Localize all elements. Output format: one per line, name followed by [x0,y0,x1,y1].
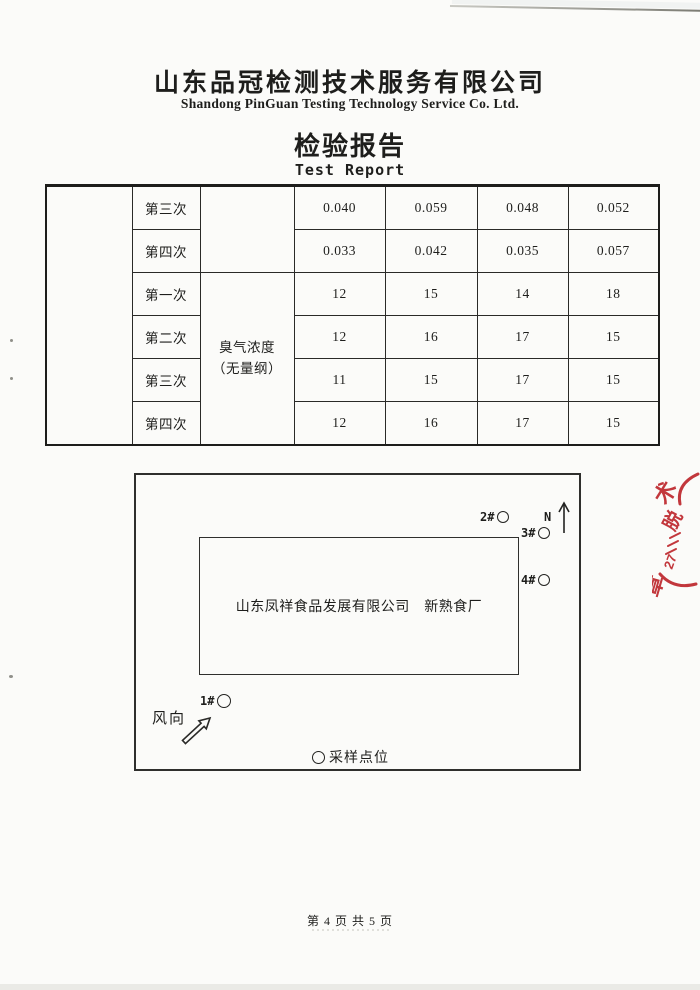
value-cell: 0.048 [477,186,568,230]
value-cell: 15 [568,316,659,359]
scan-residue [312,929,392,931]
empty-param-cell [200,186,294,273]
scan-speck [10,377,13,380]
results-table: 第三次 0.040 0.059 0.048 0.052 第四次 0.033 0.… [45,184,660,446]
value-cell: 0.052 [568,186,659,230]
value-cell: 12 [294,273,385,316]
row-label-cell: 第三次 [132,186,200,230]
stamp-glyph: 27 [661,552,680,571]
stamp-glyph: 脱 [658,507,687,535]
value-cell: 15 [568,402,659,446]
sample-point-3-label: 3# [521,526,535,540]
empty-cell [46,186,132,446]
sample-point-2-label: 2# [480,510,494,524]
parameter-name: 臭气浓度 [201,338,294,359]
value-cell: 17 [477,402,568,446]
facility-boundary: 山东凤祥食品发展有限公司 新熟食厂 [199,537,519,675]
company-name-english: Shandong PinGuan Testing Technology Serv… [0,96,700,112]
north-arrow-icon [556,499,572,535]
legend: 采样点位 [312,747,389,767]
table-row: 第四次 0.033 0.042 0.035 0.057 [46,230,659,273]
row-label-cell: 第四次 [132,402,200,446]
facility-label: 山东凤祥食品发展有限公司 新熟食厂 [236,596,483,616]
sample-point-1-label: 1# [200,694,214,708]
north-label: N [544,510,551,535]
scan-speck [9,675,13,678]
sample-point-4-label: 4# [521,573,535,587]
parameter-unit: （无量纲） [201,359,294,380]
sample-point-circle-icon [497,511,509,523]
sample-point-1: 1# [200,694,231,708]
value-cell: 17 [477,316,568,359]
sample-point-2: 2# [480,510,509,524]
sample-point-circle-icon [538,574,550,586]
company-name-chinese: 山东品冠检测技术服务有限公司 [0,63,700,99]
table-row: 第四次 12 16 17 15 [46,402,659,446]
row-label-cell: 第一次 [132,273,200,316]
value-cell: 15 [568,359,659,402]
report-title-chinese: 检验报告 [0,126,700,163]
north-indicator: N [544,499,572,535]
table-row: 第三次 11 15 17 15 [46,359,659,402]
row-label-cell: 第三次 [132,359,200,402]
value-cell: 0.059 [385,186,477,230]
value-cell: 11 [294,359,385,402]
value-cell: 0.057 [568,230,659,273]
row-label-cell: 第四次 [132,230,200,273]
legend-label: 采样点位 [329,747,389,767]
stamp-glyph: 章 [652,573,669,600]
value-cell: 12 [294,402,385,446]
value-cell: 16 [385,402,477,446]
report-title-english: Test Report [0,161,700,179]
scan-speck [10,339,13,342]
value-cell: 15 [385,359,477,402]
table-row: 第一次 臭气浓度 （无量纲） 12 15 14 18 [46,273,659,316]
value-cell: 16 [385,316,477,359]
value-cell: 0.042 [385,230,477,273]
scan-bottom-strip [0,984,700,990]
site-map-diagram: 山东凤祥食品发展有限公司 新熟食厂 2# 3# 4# 1# N [134,473,581,771]
legend-circle-icon [312,751,325,764]
value-cell: 0.033 [294,230,385,273]
wind-direction-arrow-icon [180,715,214,745]
stamp-glyph: 术 [652,477,682,509]
value-cell: 17 [477,359,568,402]
red-stamp-icon: 术 脱 27 章 [652,470,700,602]
value-cell: 0.040 [294,186,385,230]
value-cell: 0.035 [477,230,568,273]
parameter-cell: 臭气浓度 （无量纲） [200,273,294,446]
value-cell: 14 [477,273,568,316]
table-row: 第二次 12 16 17 15 [46,316,659,359]
value-cell: 18 [568,273,659,316]
scanned-report-page: 山东品冠检测技术服务有限公司 Shandong PinGuan Testing … [0,0,700,990]
value-cell: 12 [294,316,385,359]
table-row: 第三次 0.040 0.059 0.048 0.052 [46,186,659,230]
sample-point-circle-icon [217,694,231,708]
page-number: 第 4 页 共 5 页 [0,912,700,929]
row-label-cell: 第二次 [132,316,200,359]
sample-point-4: 4# [521,573,550,587]
value-cell: 15 [385,273,477,316]
